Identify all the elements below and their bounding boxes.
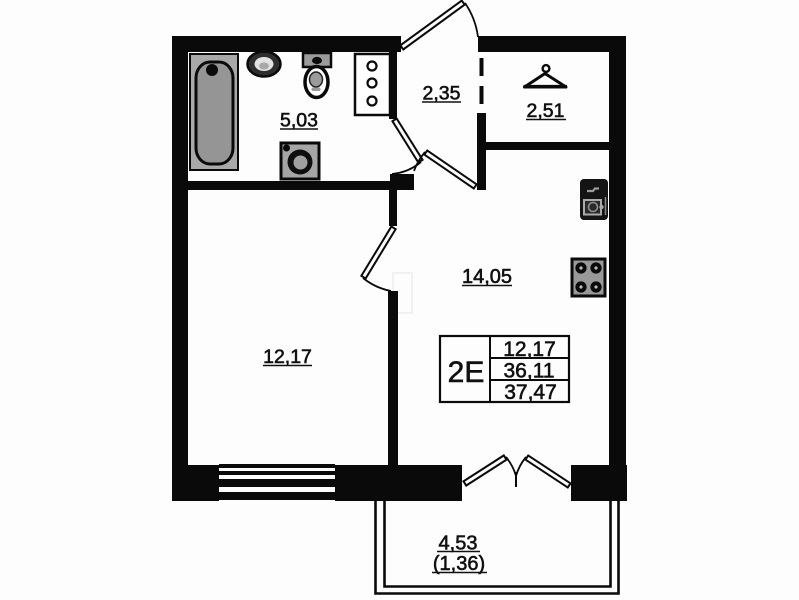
- svg-text:2Е: 2Е: [448, 356, 485, 389]
- svg-text:12,17: 12,17: [503, 338, 556, 361]
- svg-text:37,47: 37,47: [504, 381, 557, 404]
- svg-text:36,11: 36,11: [504, 360, 555, 383]
